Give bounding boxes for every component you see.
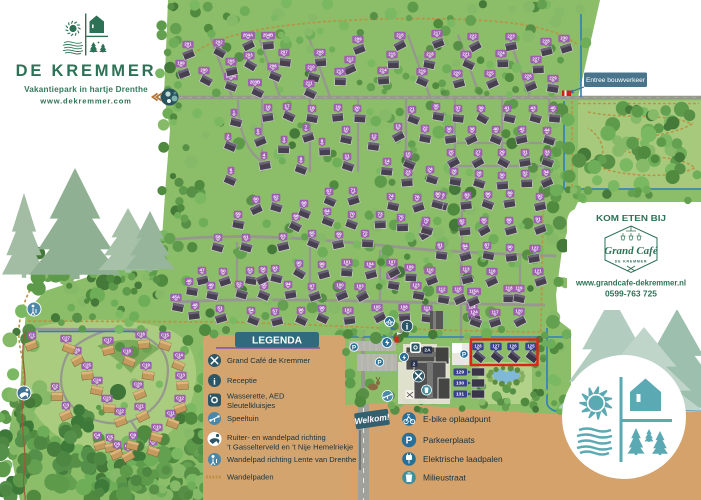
svg-text:16: 16: [265, 105, 271, 111]
svg-text:C5: C5: [107, 435, 113, 441]
svg-text:C12: C12: [176, 396, 184, 401]
svg-text:69: 69: [336, 232, 342, 238]
svg-text:37: 37: [455, 106, 461, 112]
svg-text:23: 23: [405, 170, 411, 176]
svg-text:209: 209: [354, 37, 362, 42]
svg-text:Sleutelkluisjes: Sleutelkluisjes: [227, 401, 275, 410]
svg-text:85: 85: [481, 218, 487, 224]
svg-text:51: 51: [217, 306, 223, 312]
svg-text:15: 15: [405, 152, 411, 158]
svg-text:35: 35: [433, 104, 439, 110]
svg-text:Wandelpad richting Lente van D: Wandelpad richting Lente van Drenthe: [227, 455, 356, 464]
svg-text:203: 203: [245, 53, 253, 58]
svg-text:204B: 204B: [263, 33, 273, 38]
svg-text:229: 229: [549, 76, 557, 81]
svg-text:123: 123: [412, 283, 420, 288]
svg-text:67: 67: [326, 189, 332, 195]
svg-text:84: 84: [462, 244, 468, 250]
svg-text:C16: C16: [137, 332, 145, 337]
svg-text:12: 12: [371, 134, 377, 140]
svg-text:10: 10: [343, 127, 349, 133]
svg-text:212: 212: [346, 57, 354, 62]
svg-text:218: 218: [426, 52, 434, 57]
svg-text:C13: C13: [177, 373, 185, 378]
svg-text:C24: C24: [93, 378, 101, 383]
svg-text:128: 128: [474, 344, 482, 349]
svg-text:119: 119: [516, 286, 524, 291]
svg-text:74: 74: [388, 194, 394, 200]
svg-text:225: 225: [486, 71, 494, 76]
svg-text:C2: C2: [52, 384, 58, 390]
svg-text:217: 217: [433, 31, 441, 36]
svg-text:C20: C20: [134, 382, 142, 387]
svg-text:40: 40: [493, 127, 499, 133]
svg-text:216: 216: [396, 33, 404, 38]
svg-text:KOM ETEN BIJ: KOM ETEN BIJ: [596, 213, 666, 223]
svg-text:221: 221: [462, 52, 470, 57]
svg-text:27: 27: [475, 150, 481, 156]
svg-text:62: 62: [273, 195, 279, 201]
svg-text:111: 111: [424, 306, 431, 311]
svg-text:56: 56: [260, 267, 266, 273]
svg-text:LEGENDA: LEGENDA: [252, 335, 302, 347]
svg-text:42: 42: [519, 127, 525, 133]
svg-text:60: 60: [253, 197, 259, 203]
svg-text:219: 219: [418, 69, 426, 74]
svg-text:22: 22: [422, 126, 428, 132]
svg-text:C3: C3: [63, 403, 69, 409]
svg-text:126: 126: [509, 344, 517, 349]
svg-text:79: 79: [423, 218, 429, 224]
svg-text:Speeltuin: Speeltuin: [227, 414, 259, 423]
svg-text:24: 24: [427, 167, 433, 173]
svg-text:45: 45: [550, 106, 556, 112]
svg-text:97: 97: [309, 284, 315, 290]
svg-text:Grand Café de Kremmer: Grand Café de Kremmer: [227, 356, 311, 365]
svg-text:14: 14: [384, 159, 390, 165]
svg-text:211: 211: [306, 81, 314, 86]
svg-text:53: 53: [247, 268, 253, 274]
svg-text:95: 95: [296, 261, 302, 267]
svg-text:2: 2: [413, 362, 416, 368]
svg-text:30: 30: [499, 173, 505, 179]
svg-text:68: 68: [301, 201, 307, 207]
svg-text:C10: C10: [153, 425, 161, 430]
svg-text:C27: C27: [62, 336, 70, 341]
svg-text:130: 130: [456, 380, 464, 386]
svg-text:91: 91: [535, 217, 541, 223]
svg-text:’t Gasselterveld en ’t Nije He: ’t Gasselterveld en ’t Nije Hemelriekje: [227, 443, 353, 452]
svg-text:P: P: [377, 360, 382, 367]
svg-text:DE KREMMER: DE KREMMER: [16, 62, 157, 80]
svg-text:25: 25: [448, 150, 454, 156]
svg-text:202: 202: [215, 40, 223, 45]
svg-text:58: 58: [215, 235, 221, 241]
svg-text:200: 200: [200, 68, 208, 73]
svg-text:50: 50: [220, 269, 226, 275]
svg-text:P: P: [352, 345, 357, 352]
svg-text:131: 131: [456, 391, 464, 397]
svg-text:101: 101: [343, 260, 351, 265]
svg-text:Wandelpaden: Wandelpaden: [227, 473, 274, 482]
svg-text:C23: C23: [103, 396, 111, 401]
svg-text:19: 19: [335, 105, 341, 111]
svg-text:224: 224: [497, 51, 505, 56]
svg-text:223: 223: [507, 34, 515, 39]
svg-text:220: 220: [453, 71, 461, 76]
svg-text:108: 108: [400, 305, 408, 310]
svg-text:213: 213: [336, 69, 344, 74]
svg-text:94: 94: [285, 282, 291, 288]
svg-text:C11: C11: [167, 411, 175, 416]
svg-text:83: 83: [464, 193, 470, 199]
svg-text:32: 32: [522, 171, 528, 177]
svg-text:11: 11: [344, 154, 349, 160]
svg-text:Grand Café: Grand Café: [604, 245, 659, 257]
svg-text:Entree bouwverkeer: Entree bouwverkeer: [586, 77, 646, 84]
svg-text:210: 210: [307, 65, 315, 70]
svg-text:www.dekremmer.com: www.dekremmer.com: [39, 97, 131, 106]
svg-text:C19: C19: [142, 363, 150, 368]
svg-text:65: 65: [309, 231, 315, 237]
svg-text:125: 125: [527, 344, 535, 349]
svg-text:48: 48: [192, 303, 198, 309]
svg-text:92: 92: [537, 194, 543, 200]
svg-text:115: 115: [455, 287, 463, 292]
svg-text:2A: 2A: [424, 348, 431, 354]
svg-text:215: 215: [388, 52, 396, 57]
svg-text:41: 41: [504, 106, 510, 112]
svg-text:C6: C6: [114, 442, 120, 448]
svg-text:82: 82: [459, 219, 465, 225]
svg-text:100: 100: [336, 283, 344, 288]
svg-text:76: 76: [414, 195, 420, 201]
svg-text:Elektrische laadpalen: Elektrische laadpalen: [423, 454, 503, 464]
svg-text:17: 17: [284, 104, 290, 110]
svg-text:109: 109: [406, 265, 414, 270]
svg-text:89: 89: [507, 191, 513, 197]
svg-text:203B: 203B: [250, 80, 260, 85]
svg-text:214: 214: [379, 68, 387, 73]
svg-text:127: 127: [492, 344, 500, 349]
svg-text:201: 201: [184, 42, 192, 47]
svg-text:105: 105: [373, 305, 381, 310]
svg-text:43: 43: [530, 106, 536, 112]
svg-text:20: 20: [354, 106, 360, 112]
svg-text:26: 26: [451, 169, 457, 175]
svg-text:Parkeerplaats: Parkeerplaats: [423, 435, 475, 445]
svg-text:61: 61: [243, 235, 249, 241]
svg-text:98: 98: [319, 306, 325, 312]
svg-text:52: 52: [236, 282, 242, 288]
svg-text:75: 75: [398, 215, 404, 221]
svg-text:115A: 115A: [469, 289, 479, 294]
svg-text:199: 199: [177, 61, 185, 66]
svg-text:C15: C15: [161, 333, 169, 338]
svg-text:C9: C9: [130, 433, 136, 439]
svg-text:64: 64: [324, 209, 330, 215]
svg-text:87: 87: [484, 243, 490, 249]
svg-text:47: 47: [199, 268, 205, 274]
svg-text:C14: C14: [175, 353, 183, 358]
svg-text:Milieustraat: Milieustraat: [423, 473, 466, 483]
svg-text:103: 103: [356, 284, 364, 289]
svg-text:38: 38: [469, 127, 475, 133]
svg-text:Wasserette, AED: Wasserette, AED: [227, 391, 285, 400]
svg-text:207: 207: [280, 50, 288, 55]
svg-text:57: 57: [272, 309, 278, 315]
svg-text:C4: C4: [94, 433, 100, 439]
svg-text:29: 29: [499, 150, 505, 156]
svg-text:34: 34: [543, 170, 549, 176]
svg-text:49: 49: [208, 283, 214, 289]
svg-text:33: 33: [544, 150, 550, 156]
svg-text:C21: C21: [136, 404, 144, 409]
svg-text:205: 205: [227, 59, 235, 64]
svg-text:Vakantiepark in hartje Drenthe: Vakantiepark in hartje Drenthe: [24, 85, 148, 94]
svg-text:112: 112: [439, 287, 447, 292]
svg-text:122: 122: [531, 246, 539, 251]
svg-text:99: 99: [319, 262, 325, 268]
svg-text:230: 230: [560, 36, 568, 41]
svg-text:0599-763 725: 0599-763 725: [605, 289, 657, 299]
svg-text:46: 46: [186, 279, 192, 285]
svg-text:Receptie: Receptie: [227, 376, 257, 385]
svg-text:21: 21: [409, 107, 415, 113]
svg-text:93: 93: [272, 266, 278, 272]
svg-text:P: P: [406, 436, 413, 447]
svg-text:C18: C18: [123, 349, 131, 354]
svg-text:31: 31: [522, 150, 528, 156]
svg-text:222: 222: [469, 34, 477, 39]
svg-text:117: 117: [492, 310, 500, 315]
svg-text:i: i: [213, 377, 216, 387]
svg-text:54: 54: [248, 308, 254, 314]
svg-text:124: 124: [470, 310, 478, 315]
svg-text:28: 28: [476, 171, 482, 177]
svg-text:206: 206: [269, 64, 277, 69]
svg-text:71: 71: [350, 188, 356, 194]
svg-text:13: 13: [395, 124, 401, 130]
svg-text:81: 81: [437, 243, 443, 249]
svg-text:70: 70: [349, 212, 355, 218]
svg-text:Ruiter- en wandelpad richting: Ruiter- en wandelpad richting: [227, 433, 326, 442]
svg-text:204A: 204A: [243, 33, 253, 38]
svg-text:73: 73: [377, 212, 383, 218]
svg-text:80: 80: [435, 192, 441, 198]
svg-text:72: 72: [362, 231, 368, 237]
svg-text:208: 208: [316, 50, 324, 55]
svg-text:E-bike oplaadpunt: E-bike oplaadpunt: [423, 414, 491, 424]
svg-text:36: 36: [446, 127, 452, 133]
svg-text:110: 110: [427, 268, 435, 273]
svg-text:C17: C17: [104, 338, 112, 343]
svg-text:107: 107: [388, 260, 396, 265]
svg-text:39: 39: [478, 106, 484, 112]
svg-text:C22: C22: [116, 409, 124, 414]
svg-text:44: 44: [544, 128, 550, 134]
svg-text:228: 228: [542, 39, 550, 44]
svg-text:86: 86: [485, 192, 491, 198]
svg-text:227: 227: [532, 57, 540, 62]
svg-text:59: 59: [235, 212, 241, 218]
svg-text:45A: 45A: [172, 295, 180, 300]
svg-text:C1: C1: [29, 333, 35, 339]
svg-text:116: 116: [489, 269, 497, 274]
svg-text:18: 18: [309, 106, 315, 112]
svg-text:113: 113: [463, 267, 471, 272]
svg-text:104: 104: [366, 262, 374, 267]
svg-text:DE KREMMER: DE KREMMER: [615, 260, 648, 264]
svg-text:121: 121: [534, 269, 542, 274]
svg-text:96: 96: [298, 308, 304, 314]
svg-text:C25: C25: [83, 363, 91, 368]
svg-text:www.grandcafe-dekremmer.nl: www.grandcafe-dekremmer.nl: [575, 279, 686, 288]
svg-text:226: 226: [524, 74, 532, 79]
svg-text:88: 88: [506, 218, 512, 224]
svg-text:129: 129: [456, 369, 464, 375]
svg-text:102: 102: [344, 308, 352, 313]
svg-text:90: 90: [507, 245, 513, 251]
svg-text:63: 63: [280, 234, 286, 240]
svg-text:118: 118: [506, 286, 514, 291]
svg-text:P: P: [462, 352, 467, 359]
svg-text:120: 120: [515, 309, 523, 314]
